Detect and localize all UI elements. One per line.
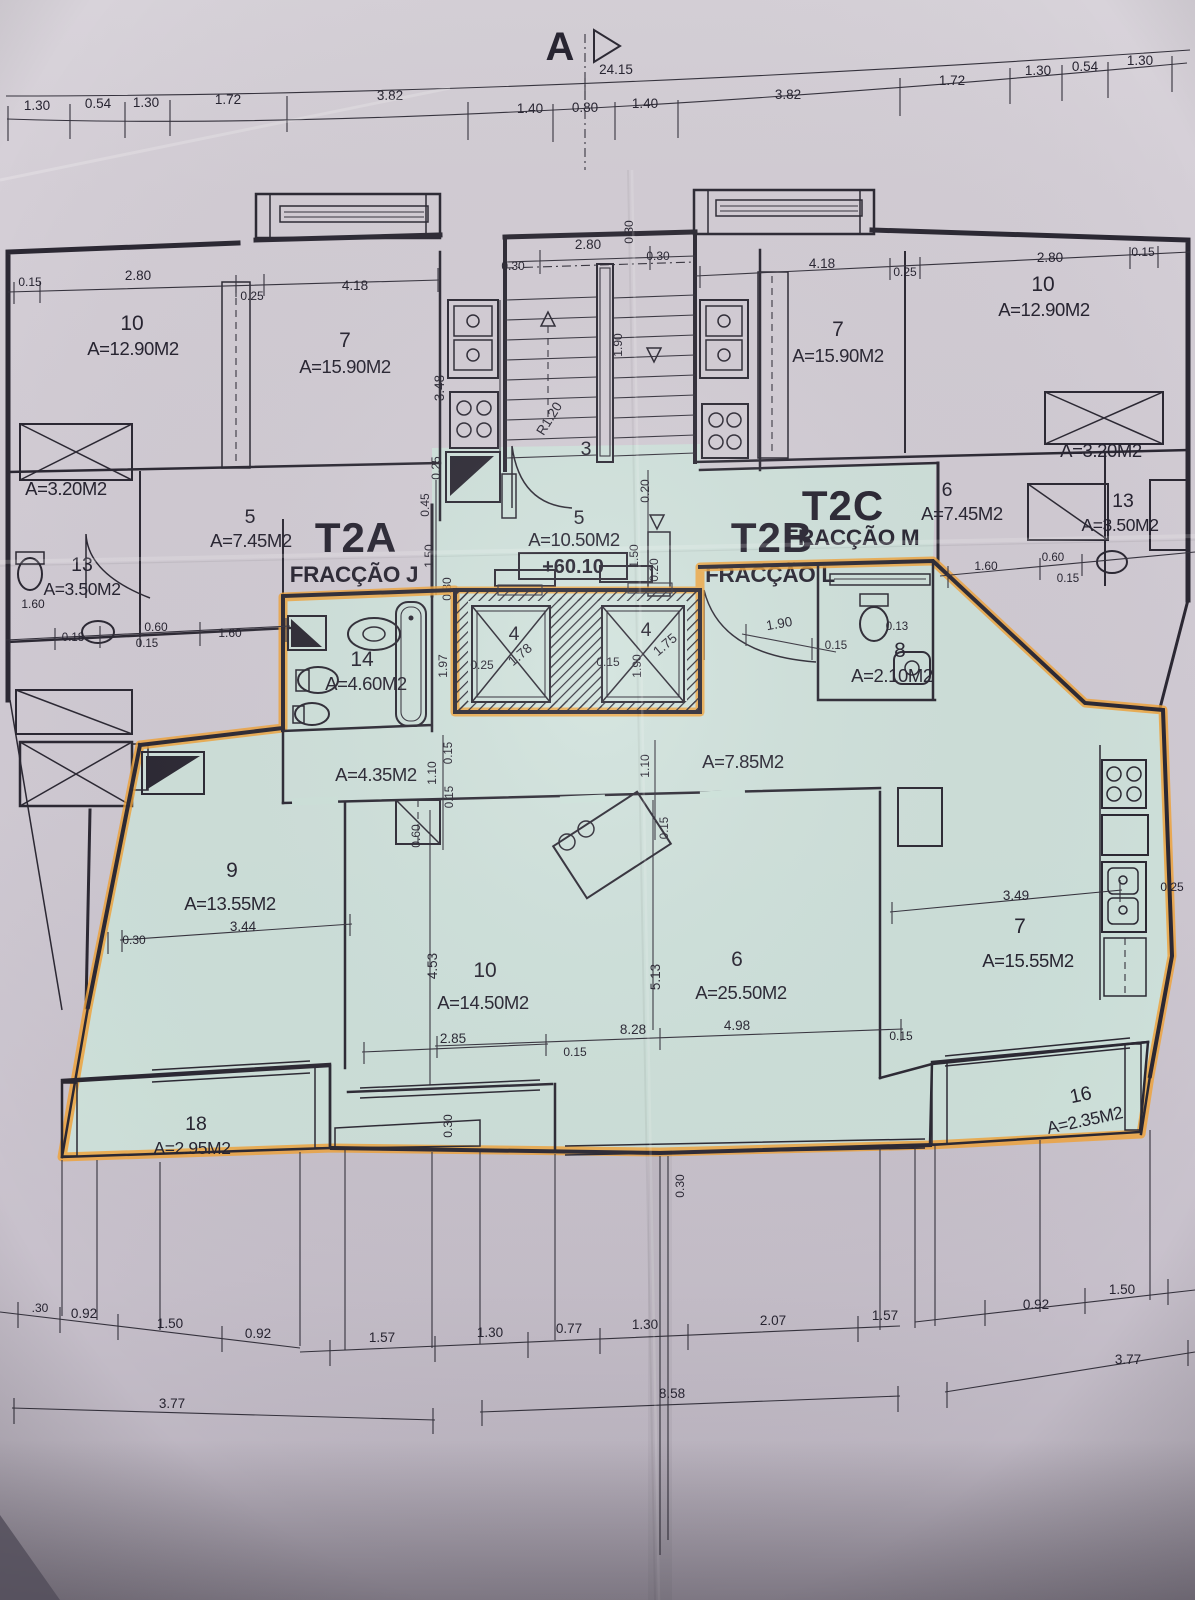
floorplan-drawing: A 24.15 1.30 0.54 1.30 1.72 3.82 1.40 0.…: [0, 0, 1195, 1600]
floorplan-photo: A 24.15 1.30 0.54 1.30 1.72 3.82 1.40 0.…: [0, 0, 1195, 1600]
bottom-shadow: [0, 1440, 1195, 1600]
vignette-overlay: [0, 0, 1195, 1600]
